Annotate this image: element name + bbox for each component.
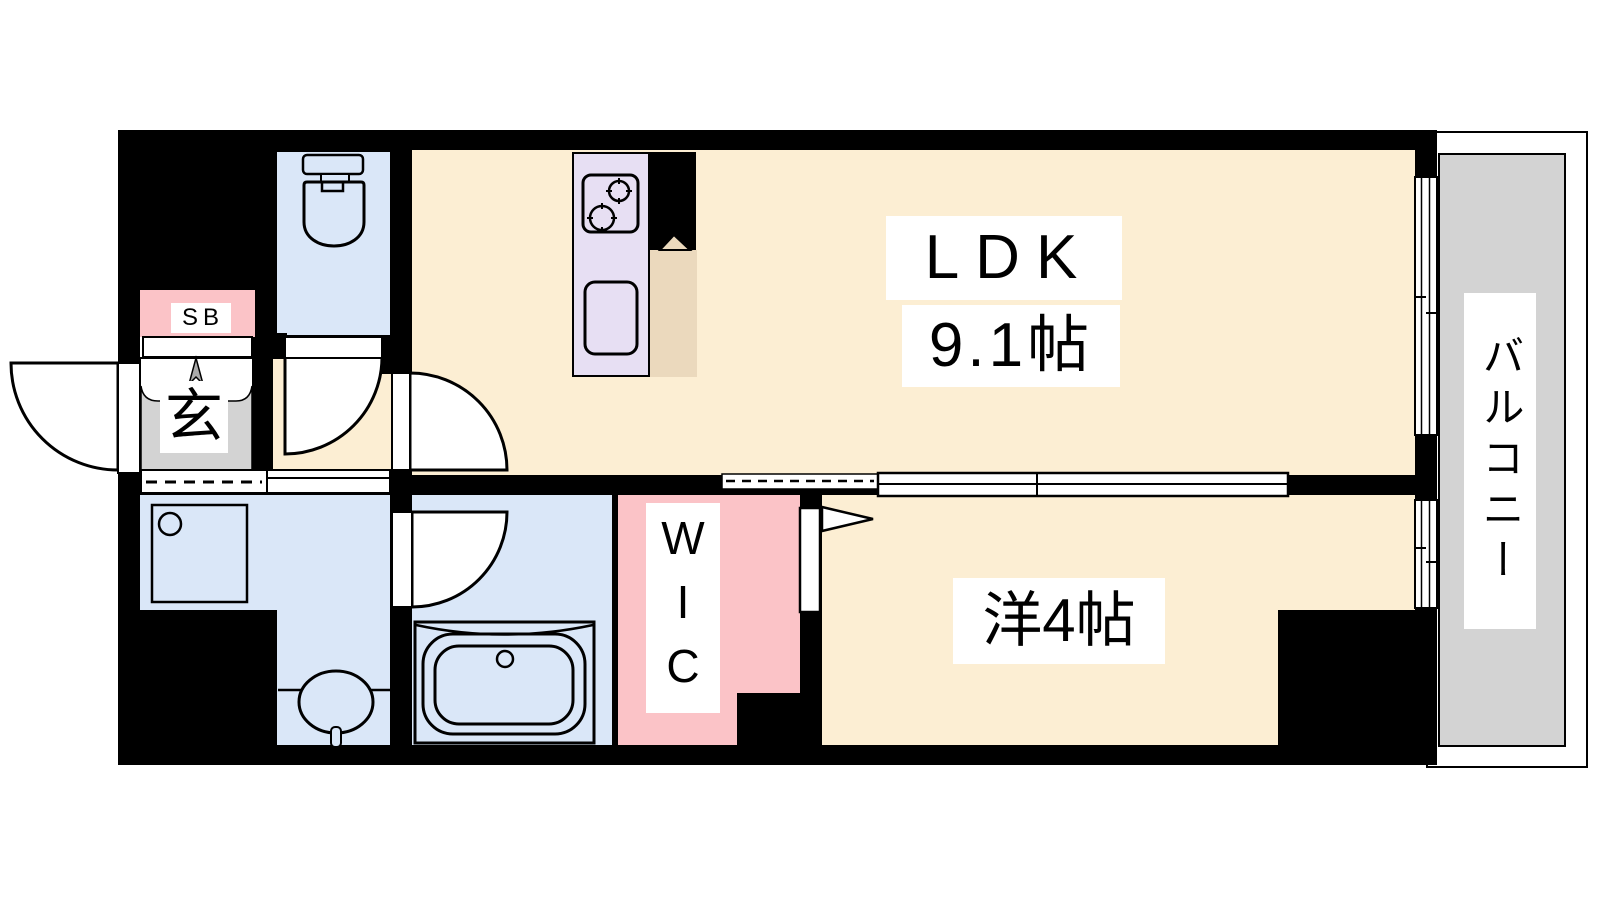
room-hallway: [273, 357, 412, 470]
balcony-label: バルコニー: [1464, 293, 1536, 629]
wic-label: WIC: [646, 503, 720, 713]
ldk-size-label: 9.1帖: [902, 305, 1120, 387]
room-bathroom: [412, 495, 612, 745]
western-room-text: 洋4帖: [982, 591, 1135, 651]
room-toilet: [277, 152, 390, 335]
entrance-label: 玄: [160, 381, 228, 453]
shoe-box-text: SB: [182, 306, 224, 330]
entrance-text: 玄: [165, 388, 223, 446]
ldk-size-text: 9.1帖: [929, 315, 1093, 377]
room-washroom-upper: [140, 495, 390, 610]
floor-plan: LDK 9.1帖 洋4帖 WIC バルコニー 玄 SB: [0, 0, 1600, 900]
ldk-name-label: LDK: [886, 216, 1122, 300]
kitchen-counter: [572, 152, 650, 377]
western-room-label: 洋4帖: [953, 578, 1165, 664]
shoe-box-label: SB: [171, 303, 231, 333]
kitchen-pillar: [650, 152, 696, 250]
wic-text: WIC: [660, 512, 706, 704]
ldk-name-text: LDK: [925, 227, 1094, 289]
balcony-text: バルコニー: [1479, 334, 1521, 589]
room-washroom-lower: [277, 610, 390, 745]
kitchen-side-strip: [650, 250, 697, 377]
